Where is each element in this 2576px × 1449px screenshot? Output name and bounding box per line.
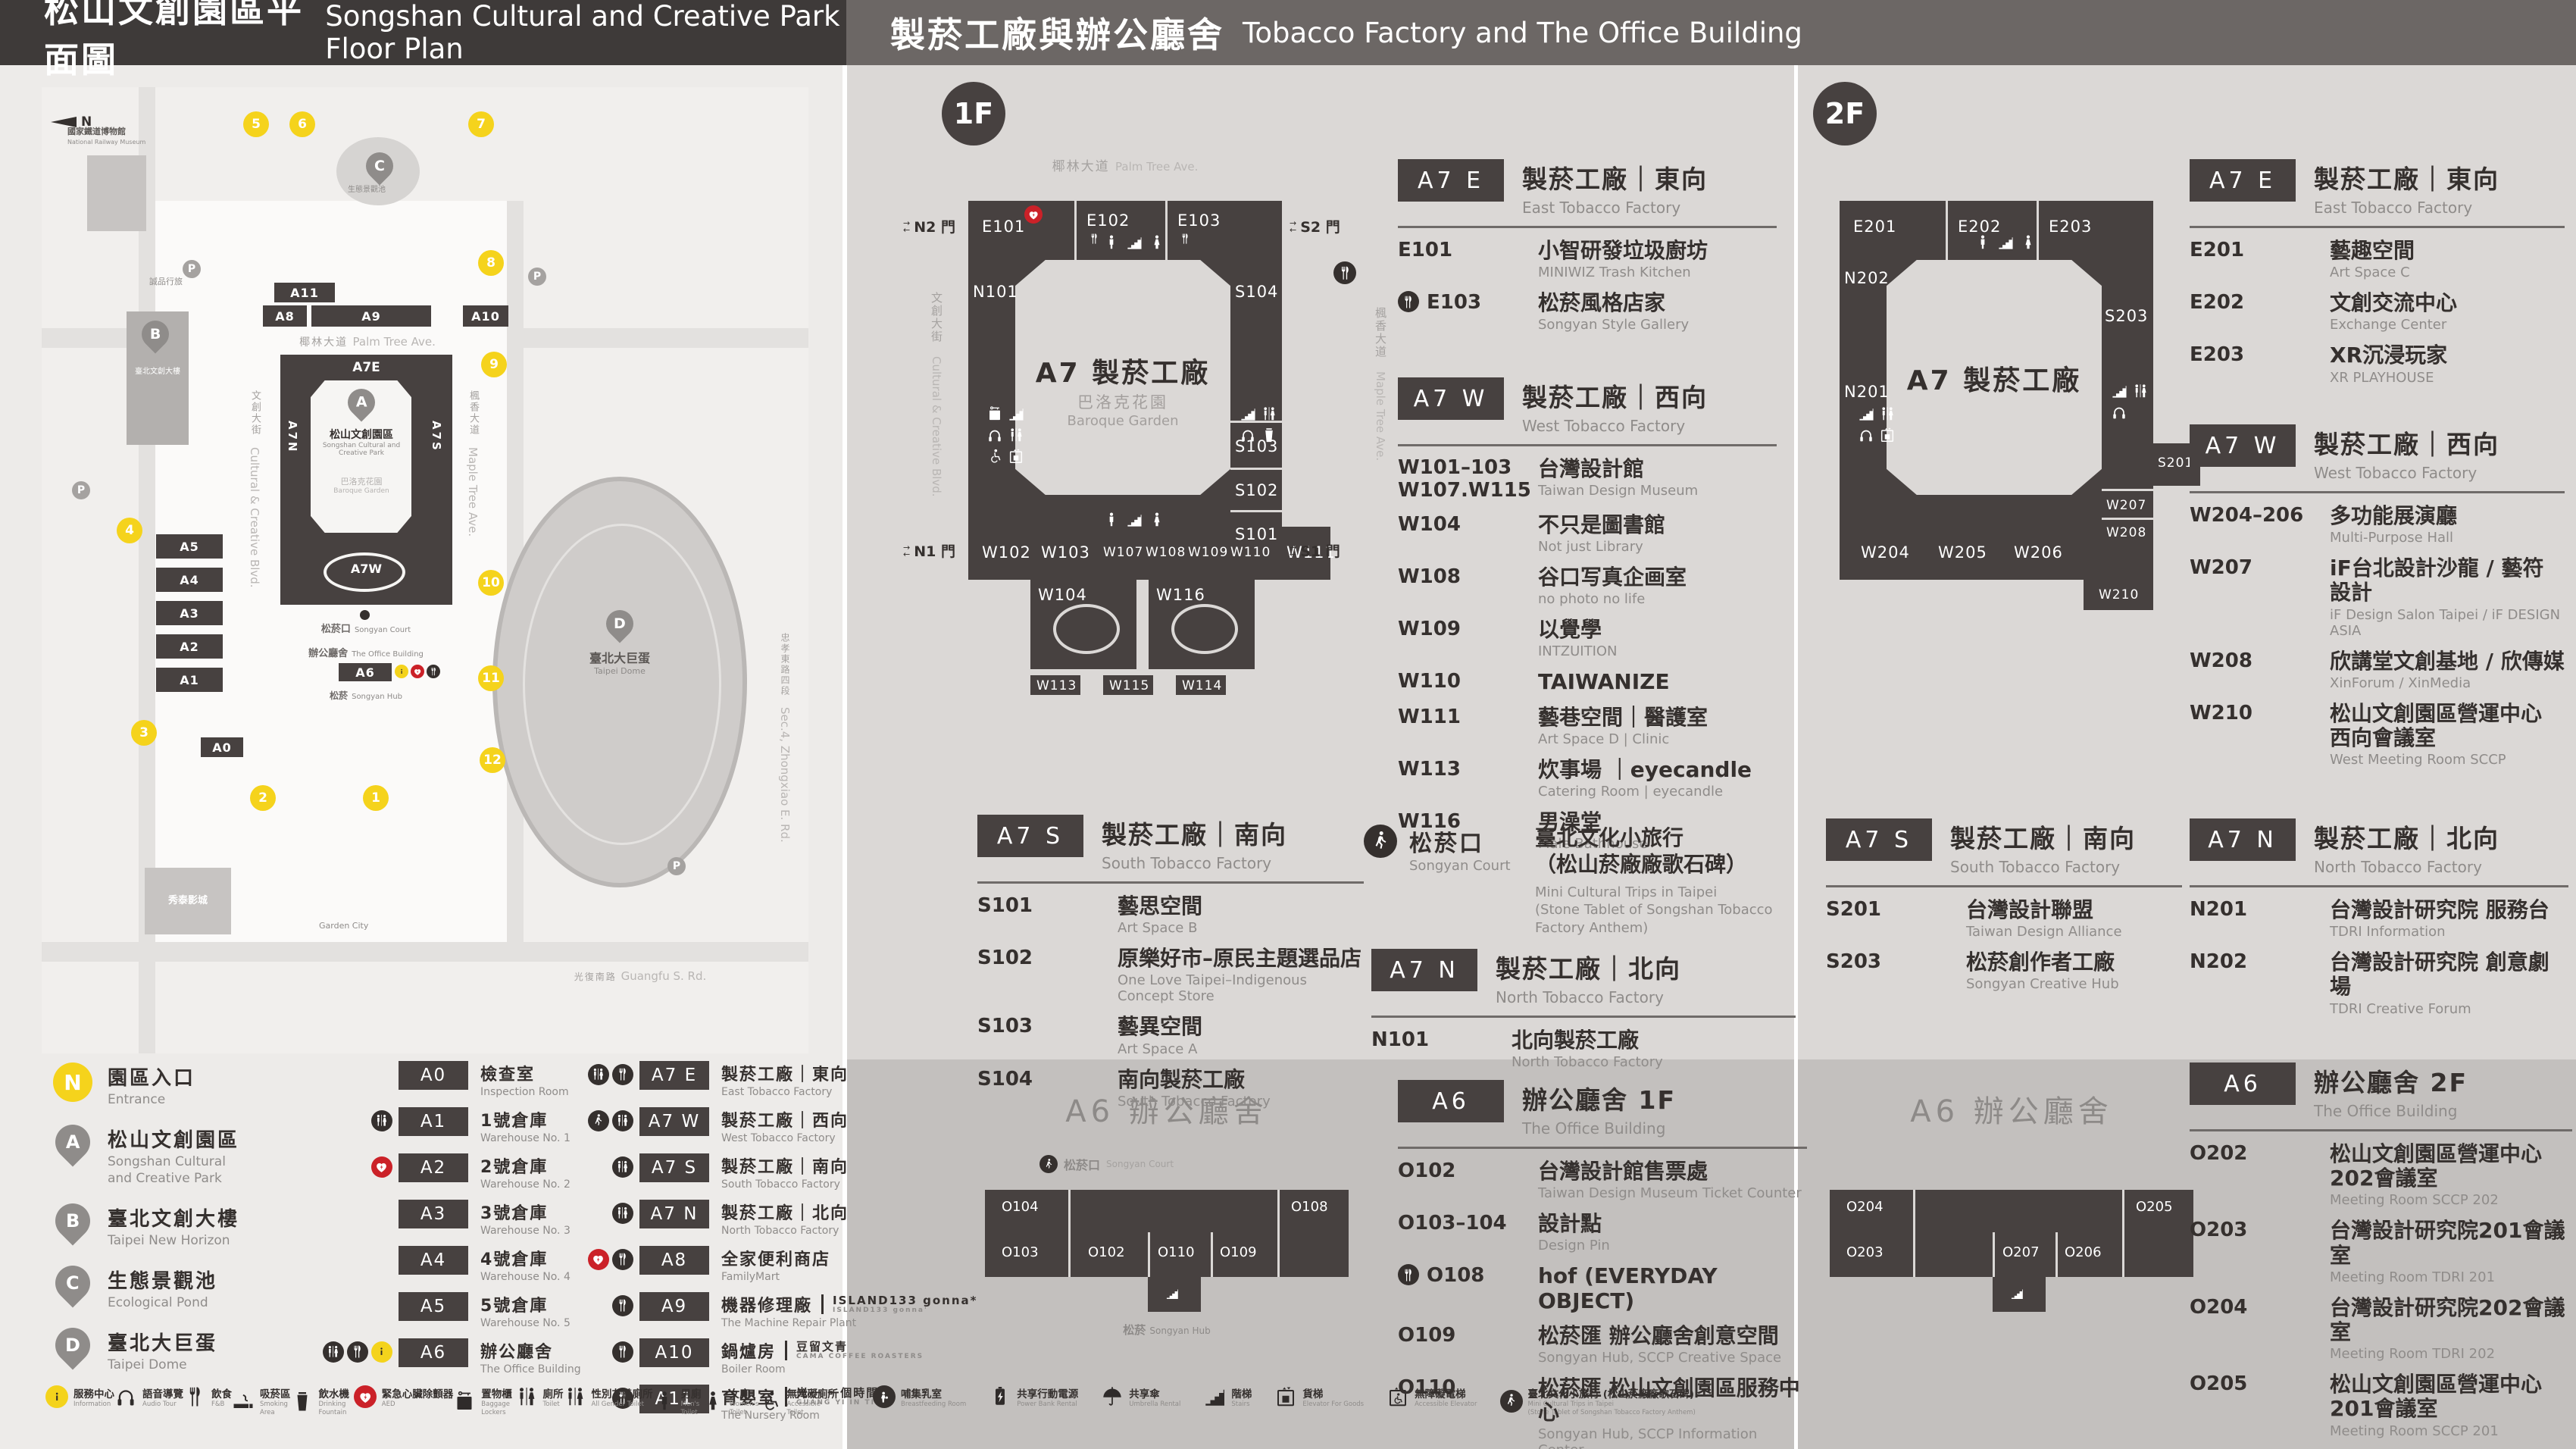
plan-cultural-blvd: 文創大街 Cultural & Creative Blvd. <box>929 292 945 497</box>
legend-building-row: A22號倉庫Warehouse No. 2 <box>317 1153 581 1191</box>
legend-building-badge: A8 <box>639 1246 709 1275</box>
room-o204: O204 <box>1846 1199 1884 1215</box>
room-code-text: O109 <box>1398 1324 1455 1347</box>
directory-item: W101–103W107.W115台灣設計館Taiwan Design Muse… <box>1398 457 1777 502</box>
toilet-icon <box>588 1064 609 1085</box>
section-titles: 製菸工廠｜東向East Tobacco Factory <box>2314 159 2499 217</box>
section-badge: A6 <box>1398 1080 1504 1122</box>
room-name-zh: 松山文創園區營運中心202會議室 <box>2330 1142 2572 1191</box>
room-code: E103 <box>1398 291 1538 314</box>
legend-marker-zh: 臺北大巨蛋 <box>108 1328 217 1356</box>
room-code-text: W111 <box>1398 706 1461 728</box>
room-info: 多功能展演廳Multi-Purpose Hall <box>2330 504 2457 546</box>
section-titles: 製菸工廠｜東向East Tobacco Factory <box>1522 159 1708 217</box>
legend-marker-zh: 松山文創園區 <box>108 1125 239 1153</box>
legend-marker-row: B臺北文創大樓Taipei New Horizon <box>53 1203 239 1249</box>
w104-oval <box>1053 604 1120 654</box>
room-code-text: W108 <box>1398 565 1461 588</box>
songyan-court-label: 松菸口 Songyan Court <box>1409 825 1523 874</box>
facility-zh: 階梯 <box>1231 1385 1252 1400</box>
facility-item: 共享行動電源Power Bank Rental <box>989 1385 1078 1409</box>
room-info: 松菸匯 辦公廳舍創意空間Songyan Hub, SCCP Creative S… <box>1538 1324 1781 1366</box>
facility-zh: 無障礙廁所 <box>787 1385 839 1400</box>
legend-building-badge: A7 E <box>639 1061 709 1090</box>
entrance-2: 2 <box>250 785 276 811</box>
toilet-icon <box>1008 427 1024 443</box>
room-info: iF台北設計沙龍 / 藝符設計iF Design Salon Taipei / … <box>2330 556 2565 638</box>
room-code-text: S102 <box>977 947 1033 969</box>
facility-zh: 吸菸區 <box>260 1385 291 1400</box>
facility-text: 哺集乳室Breastfeeding Room <box>901 1385 966 1409</box>
section-badge: A7 S <box>977 815 1083 857</box>
legend-building-en: South Tobacco Factory <box>721 1178 849 1191</box>
directory-item: O102台灣設計館售票處Taiwan Design Museum Ticket … <box>1398 1160 1807 1201</box>
legend-marker-zh: 園區入口 <box>108 1062 195 1091</box>
directory-item: O204台灣設計研究院202會議室Meeting Room TDRI 202 <box>2190 1296 2572 1362</box>
divider <box>1398 1147 1807 1149</box>
facility-text: 語音導覽Audio Tour <box>142 1385 183 1409</box>
stairs-icon <box>1240 405 1256 422</box>
legend-row-icons <box>317 1292 392 1295</box>
room-code: N101 <box>1371 1028 1512 1051</box>
room-info: 台灣設計聯盟Taiwan Design Alliance <box>1966 898 2122 940</box>
womens-toilet-icon <box>1149 234 1165 251</box>
legend-row-icons <box>558 1153 633 1178</box>
facility-zh: 女廁 <box>730 1385 759 1400</box>
room-code-text: S203 <box>1826 950 1881 973</box>
room-name-zh: iF台北設計沙龍 / 藝符設計 <box>2330 556 2565 605</box>
section-title-zh: 製菸工廠｜南向 <box>1102 815 1287 851</box>
facility-text: 廁所Toilet <box>543 1385 564 1409</box>
parking-icon: P <box>528 268 546 286</box>
railway-museum-label: 國家鐵道博物館National Railway Museum <box>67 127 174 146</box>
room-name-en: Exchange Center <box>2330 317 2457 333</box>
womens-toilet-icon <box>1149 512 1165 528</box>
facility-en: Elevator For Goods <box>1302 1400 1364 1409</box>
room-name-en: XinForum / XinMedia <box>2330 675 2565 691</box>
room-e101: E101 <box>982 218 1025 236</box>
floor-2f-badge: 2F <box>1813 82 1877 146</box>
section-header: A7 N製菸工廠｜北向North Tobacco Factory <box>1371 949 1796 1006</box>
plan-1f-baroque: 巴洛克花園 Baroque Garden <box>1015 390 1230 429</box>
legend-marker-en: Taipei New Horizon <box>108 1233 239 1249</box>
a6-1f-hub-label: 松菸 Songyan Hub <box>970 1322 1364 1338</box>
zh-main: 機器修理廠 <box>721 1292 812 1316</box>
facility-en: Smoking Area <box>260 1400 291 1416</box>
zh-main: 全家便利商店 <box>721 1246 830 1270</box>
zh-main: 2號倉庫 <box>480 1153 548 1178</box>
room-n201: N201 <box>1844 383 1890 401</box>
brand-en: ISLAND133 gonna' <box>833 1307 977 1314</box>
directory-item: W111藝巷空間｜醫護室Art Space D | Clinic <box>1398 706 1777 747</box>
umbrella-icon <box>1101 1385 1124 1408</box>
divider <box>2190 1129 2572 1131</box>
room-code: O103–104 <box>1398 1212 1538 1235</box>
room-name-zh: 松山文創園區營運中心 <box>2330 702 2542 726</box>
room-name-zh: 藝思空間 <box>1118 894 1202 919</box>
room-code-text: W210 <box>2190 702 2252 724</box>
elevator-icon <box>1008 448 1024 465</box>
legend-building-row: A7 S製菸工廠｜南向South Tobacco Factory <box>558 1153 977 1191</box>
facility-item: 女廁Women's Toilet <box>702 1385 759 1416</box>
room-code-text: E101 <box>1398 239 1452 261</box>
room-w210: W210 <box>2099 587 2139 602</box>
facility-text: 階梯Stairs <box>1231 1385 1252 1409</box>
songyan-court-text: 臺北文化小旅行 （松山菸廠廠歌石碑） Mini Cultural Trips i… <box>1535 825 1803 937</box>
room-info: 以覺學INTZUITION <box>1538 618 1618 659</box>
room-info: 設計點Design Pin <box>1538 1212 1610 1253</box>
room-code-text: W110 <box>1398 670 1461 693</box>
gate-s2: S2 門 <box>1290 216 1340 236</box>
entrance-9: 9 <box>481 352 507 377</box>
room-name-en: Taiwan Design Museum <box>1538 483 1698 499</box>
section-badge: A7 W <box>2190 424 2296 467</box>
facility-en: Women's Toilet <box>730 1400 759 1416</box>
facility-item: 共享傘Umbrella Rental <box>1101 1385 1180 1409</box>
divider <box>1371 1016 1796 1018</box>
legend-building-badge: A0 <box>399 1061 468 1090</box>
legend-building-text: 機器修理廠ISLAND133 gonna*ISLAND133 gonna'The… <box>721 1292 977 1329</box>
room-code: O203 <box>2190 1219 2330 1241</box>
room-code: W210 <box>2190 702 2330 724</box>
directory-item: W208欣講堂文創基地 / 欣傳媒XinForum / XinMedia <box>2190 649 2565 691</box>
room-name-zh: 台灣設計館 <box>1538 457 1698 481</box>
room-info: 文創交流中心Exchange Center <box>2330 291 2457 333</box>
room-name-en: One Love Taipei–Indigenous Concept Store <box>1118 972 1364 1004</box>
room-w102: W102 <box>982 543 1031 562</box>
legend-marker-row: A松山文創園區Songshan Culturaland Creative Par… <box>53 1125 239 1187</box>
legend-building-badge: A2 <box>399 1153 468 1182</box>
legend-building-text: 製菸工廠｜北向North Tobacco Factory <box>721 1200 849 1237</box>
stairs-icon <box>1126 512 1143 528</box>
gate-s1: S1 門 <box>1290 540 1340 561</box>
divider <box>2190 885 2568 887</box>
room-name-zh: 炊事場 ｜eyecandle <box>1538 758 1752 782</box>
directory-2f-a7s: A7 S製菸工廠｜南向South Tobacco FactoryS201台灣設計… <box>1826 818 2182 992</box>
brand-label: 豆留文青CAMA COFFEE ROASTERS <box>785 1341 924 1361</box>
facility-text: 共享行動電源Power Bank Rental <box>1017 1385 1078 1409</box>
room-info: 台灣設計館Taiwan Design Museum <box>1538 457 1698 499</box>
room-name-en: iF Design Salon Taipei / iF DESIGN ASIA <box>2330 607 2565 639</box>
room-e102: E102 <box>1086 211 1130 230</box>
facility-text: 性別友善廁所All Gender Toilet <box>592 1385 653 1409</box>
new-horizon-label: 臺北文創大樓 <box>133 365 183 376</box>
map-pin-icon: C <box>48 1258 97 1307</box>
a7w-map-label: A7W <box>280 562 452 576</box>
map-hub-label: 松菸 Songyan Hub <box>305 687 427 702</box>
food-icon <box>1088 233 1100 245</box>
legend-buildings-b: A7 E製菸工廠｜東向East Tobacco FactoryA7 W製菸工廠｜… <box>558 1061 977 1431</box>
building-a6: A6 <box>339 663 392 681</box>
legend-marker-en: Entrance <box>108 1092 195 1108</box>
room-code-text: N201 <box>2190 898 2247 921</box>
legend-marker-text: 松山文創園區Songshan Culturaland Creative Park <box>108 1125 239 1187</box>
room-info: 藝趣空間Art Space C <box>2330 239 2415 280</box>
room-name-en: Art Space C <box>2330 264 2415 280</box>
info-icon <box>371 1341 392 1363</box>
legend-building-row: A55號倉庫Warehouse No. 5 <box>317 1292 581 1329</box>
section-header: A7 W製菸工廠｜西向West Tobacco Factory <box>2190 424 2565 482</box>
directory-item: O203台灣設計研究院201會議室Meeting Room TDRI 201 <box>2190 1219 2572 1285</box>
room-name-zh: 設計點 <box>1538 1212 1610 1236</box>
room-name-en: TDRI Creative Forum <box>2330 1001 2568 1017</box>
zh-main: 製菸工廠｜北向 <box>721 1200 849 1224</box>
entrance-11: 11 <box>478 665 504 691</box>
room-name-en: Art Space B <box>1118 920 1202 936</box>
room-name-en: Not just Library <box>1538 539 1665 555</box>
room-w114: W114 <box>1182 678 1222 693</box>
legend-row-icons <box>317 1338 392 1363</box>
room-info: 原樂好市–原民主題選品店One Love Taipei–Indigenous C… <box>1118 947 1364 1004</box>
legend-building-badge: A1 <box>399 1107 468 1136</box>
room-code: E101 <box>1398 239 1538 261</box>
facility-text: 貨梯Elevator For Goods <box>1302 1385 1364 1409</box>
facility-en: Drinking Fountain <box>319 1400 354 1416</box>
room-name-en: Songyan Hub, SCCP Creative Space <box>1538 1350 1781 1366</box>
directory-1f-a7e: A7 E製菸工廠｜東向East Tobacco FactoryE101小智研發垃… <box>1398 159 1777 333</box>
directory-item: E201藝趣空間Art Space C <box>2190 239 2565 280</box>
directory-item: O110松菸匯 松山文創園區服務中心Songyan Hub, SCCP Info… <box>1398 1376 1807 1449</box>
room-code: W111 <box>1398 706 1538 728</box>
legend-marker-en: Taipei Dome <box>108 1357 217 1373</box>
a6-1f-title: A6 辦公廳舍 <box>970 1087 1364 1131</box>
room-code-text: W109 <box>1398 618 1461 640</box>
stairs-icon <box>2010 1287 2024 1300</box>
room-info: 藝巷空間｜醫護室Art Space D | Clinic <box>1538 706 1708 747</box>
stairs-icon <box>1203 1385 1226 1408</box>
room-name-zh: 以覺學 <box>1538 618 1618 642</box>
legend-building-row: A44號倉庫Warehouse No. 4 <box>317 1246 581 1283</box>
aed-icon <box>354 1385 377 1408</box>
brand-zh: 豆留文青 <box>796 1341 924 1354</box>
room-name-en: West Meeting Room SCCP <box>2330 752 2542 768</box>
room-w110: W110 <box>1230 545 1271 560</box>
room-code: W104 <box>1398 513 1538 536</box>
a6-plan-2f: A6 辦公廳舍 O204 O205 O203 O207 O206 <box>1815 1084 2209 1372</box>
food-icon <box>612 1064 633 1085</box>
legend-building-en: North Tobacco Factory <box>721 1225 849 1237</box>
room-code: S201 <box>1826 898 1966 921</box>
trip-icon <box>588 1110 609 1131</box>
facility-en: All Gender Toilet <box>592 1400 653 1409</box>
room-info: 不只是圖書館Not just Library <box>1538 513 1665 555</box>
divider <box>1398 444 1777 446</box>
entrance-4: 4 <box>117 518 142 543</box>
section-titles: 辦公廳舍 2FThe Office Building <box>2314 1062 2468 1120</box>
room-o205: O205 <box>2136 1199 2173 1215</box>
cinema-label: 秀泰影城 <box>152 892 224 906</box>
room-w108: W108 <box>1146 545 1186 560</box>
facility-item: 飲水機Drinking Fountain <box>291 1385 354 1416</box>
room-info: 小智研發垃圾廚坊MINIWIZ Trash Kitchen <box>1538 239 1708 280</box>
parking-icon: P <box>667 857 686 875</box>
facility-strip-left: 服務中心Information語音導覽Audio Tour飲食F&B吸菸區Smo… <box>45 1385 838 1416</box>
section-header: A6辦公廳舍 1FThe Office Building <box>1398 1080 1807 1138</box>
room-code: N202 <box>2190 950 2330 973</box>
section-title-zh: 製菸工廠｜南向 <box>1950 818 2136 855</box>
room-code-text: E203 <box>2190 343 2244 366</box>
a7e-map-label: A7E <box>280 360 452 375</box>
room-name-zh: 松菸風格店家 <box>1538 291 1689 315</box>
section-title-en: The Office Building <box>1522 1119 1676 1138</box>
audio-tour-icon <box>1858 427 1874 443</box>
taipei-dome-inner <box>523 524 721 845</box>
room-n202: N202 <box>1844 269 1890 287</box>
room-w104: W104 <box>1038 586 1087 604</box>
section-header: A6辦公廳舍 2FThe Office Building <box>2190 1062 2572 1120</box>
divider <box>1398 226 1777 228</box>
room-w116: W116 <box>1156 586 1205 604</box>
food-icon <box>347 1341 368 1363</box>
room-info: 欣講堂文創基地 / 欣傳媒XinForum / XinMedia <box>2330 649 2565 691</box>
legend-building-text: 製菸工廠｜東向East Tobacco Factory <box>721 1061 849 1098</box>
room-o207: O207 <box>2002 1244 2040 1260</box>
women-icon <box>702 1390 724 1413</box>
room-info: 台灣設計館售票處Taiwan Design Museum Ticket Coun… <box>1538 1160 1802 1201</box>
legend-building-row: A10鍋爐房豆留文青CAMA COFFEE ROASTERSBoiler Roo… <box>558 1338 977 1375</box>
section-badge: A7 N <box>1371 949 1477 991</box>
directory-item: S102原樂好市–原民主題選品店One Love Taipei–Indigeno… <box>977 947 1364 1004</box>
room-name-en: Multi-Purpose Hall <box>2330 530 2457 546</box>
room-info: TAIWANIZE <box>1538 670 1670 694</box>
power-icon <box>989 1385 1011 1408</box>
facility-en: Audio Tour <box>142 1400 183 1409</box>
legend-building-row: A8全家便利商店FamilyMart <box>558 1246 977 1283</box>
legend-marker-text: 臺北文創大樓Taipei New Horizon <box>108 1203 239 1249</box>
facility-item: 廁所Toilet <box>515 1385 564 1409</box>
left-title-en: Songshan Cultural and Creative Park Floo… <box>325 0 846 65</box>
room-info: 谷口写真企画室no photo no life <box>1538 565 1687 607</box>
room-code: O204 <box>2190 1296 2330 1319</box>
audio-tour-icon <box>986 427 1003 443</box>
zh-main: 4號倉庫 <box>480 1246 548 1270</box>
legend-building-zh: 製菸工廠｜東向 <box>721 1061 849 1085</box>
room-name-en: Songyan Hub, SCCP Information Center <box>1538 1426 1807 1449</box>
drinking-fountain-icon <box>1261 427 1277 443</box>
food-icon <box>183 1385 206 1408</box>
entrance-1: 1 <box>363 785 389 811</box>
section-badge: A6 <box>2190 1062 2296 1105</box>
facility-zh: 服務中心 <box>73 1385 114 1400</box>
toilet-icon <box>612 1156 633 1178</box>
room-e103: E103 <box>1177 211 1221 230</box>
facility-zh: 性別友善廁所 <box>592 1385 653 1400</box>
directory-2f-a6: A6辦公廳舍 2FThe Office BuildingO202松山文創園區營運… <box>2190 1062 2572 1449</box>
building-a4: A4 <box>156 568 223 592</box>
section-title-en: West Tobacco Factory <box>1522 417 1708 435</box>
legend-building-row: A11號倉庫Warehouse No. 1 <box>317 1107 581 1144</box>
facility-item: 性別友善廁所All Gender Toilet <box>564 1385 653 1409</box>
gate-n2: N2 門 <box>903 216 955 236</box>
section-title-en: East Tobacco Factory <box>2314 199 2499 217</box>
facility-en: AED <box>382 1400 454 1409</box>
room-info: hof (EVERYDAY OBJECT) <box>1538 1264 1807 1313</box>
room-name-en: MINIWIZ Trash Kitchen <box>1538 264 1708 280</box>
legend-marker-row: D臺北大巨蛋Taipei Dome <box>53 1328 239 1373</box>
aed-icon <box>411 665 424 678</box>
room-info: 松菸匯 松山文創園區服務中心Songyan Hub, SCCP Informat… <box>1538 1376 1807 1449</box>
directory-item: W108谷口写真企画室no photo no life <box>1398 565 1777 607</box>
zh-main: 鍋爐房 <box>721 1338 776 1363</box>
legend-row-icons <box>558 1200 633 1224</box>
walking-person-icon <box>1039 1155 1058 1173</box>
room-code-text: N101 <box>1371 1028 1429 1051</box>
room-name-en: Meeting Room SCCP 202 <box>2330 1192 2572 1208</box>
zh-main: 檢查室 <box>480 1061 535 1085</box>
directory-item: W204–206多功能展演廳Multi-Purpose Hall <box>2190 504 2565 546</box>
facility-zh: 廁所 <box>543 1385 564 1400</box>
room-code: W108 <box>1398 565 1538 588</box>
section-title-en: East Tobacco Factory <box>1522 199 1708 217</box>
legend-building-zh: 機器修理廠ISLAND133 gonna*ISLAND133 gonna' <box>721 1292 977 1316</box>
facility-text: 無障礙廁所Accessible Toilet <box>787 1385 839 1416</box>
room-code-text: W207 <box>2190 556 2252 579</box>
entrance-marker-icon: N <box>53 1062 92 1102</box>
room-n101: N101 <box>973 283 1018 301</box>
legend-row-icons <box>558 1338 633 1363</box>
toilet-icon <box>2132 383 2149 399</box>
divider <box>2190 226 2565 228</box>
legend-building-en: Boiler Room <box>721 1363 924 1375</box>
smoke-icon <box>232 1390 255 1413</box>
room-name-zh: 台灣設計研究院202會議室 <box>2330 1296 2572 1344</box>
room-name-zh: 藝異空間 <box>1118 1015 1202 1039</box>
legend-building-zh: 製菸工廠｜南向 <box>721 1153 849 1178</box>
room-code: S101 <box>977 894 1118 917</box>
walking-person-icon <box>1364 825 1397 858</box>
aed-icon <box>588 1249 609 1270</box>
wheel-icon <box>759 1390 782 1413</box>
room-name-zh: 台灣設計聯盟 <box>1966 898 2122 922</box>
a7s-map-label: A7S <box>430 421 443 452</box>
legend-marker-zh: 生態景觀池 <box>108 1266 217 1294</box>
zh-main: 製菸工廠｜東向 <box>721 1061 849 1085</box>
facility-item: 無障礙廁所Accessible Toilet <box>759 1385 839 1416</box>
stairs-icon <box>1165 1287 1179 1300</box>
legend-building-en: FamilyMart <box>721 1271 830 1283</box>
food-icon <box>1179 233 1191 245</box>
room-code: S203 <box>1826 950 1966 973</box>
section-badge: A7 E <box>2190 159 2296 202</box>
legend-building-row: A9機器修理廠ISLAND133 gonna*ISLAND133 gonna'T… <box>558 1292 977 1329</box>
room-name-zh: 多功能展演廳 <box>2330 504 2457 528</box>
pin-letter: A <box>66 1131 80 1153</box>
zh-main: 辦公廳舍 <box>480 1338 553 1363</box>
room-e201: E201 <box>1853 218 1896 236</box>
room-o103: O103 <box>1002 1244 1039 1260</box>
room-name-zh: 台灣設計館售票處 <box>1538 1160 1802 1184</box>
room-o108: O108 <box>1291 1199 1328 1215</box>
room-name-en: Songyan Creative Hub <box>1966 976 2119 992</box>
room-name-en: Art Space A <box>1118 1041 1202 1057</box>
building-a0: A0 <box>201 737 243 757</box>
facility-text: 飲水機Drinking Fountain <box>319 1385 354 1416</box>
room-code-text: O202 <box>2190 1142 2247 1165</box>
room-code: W207 <box>2190 556 2330 579</box>
directory-item: S101藝思空間Art Space B <box>977 894 1364 936</box>
legend-building-zh: 製菸工廠｜北向 <box>721 1200 849 1224</box>
aed-icon <box>371 1156 392 1178</box>
facility-item: 置物櫃Baggage Lockers <box>453 1385 514 1416</box>
brand-label: ISLAND133 gonna*ISLAND133 gonna' <box>821 1294 977 1315</box>
room-code: O102 <box>1398 1160 1538 1182</box>
room-name-en: no photo no life <box>1538 591 1687 607</box>
toilet-icon <box>323 1341 344 1363</box>
room-code-line: W101–103 <box>1398 457 1531 480</box>
room-info: 松山文創園區營運中心西向會議室West Meeting Room SCCP <box>2330 702 2542 768</box>
map-pin-icon: A <box>48 1118 97 1167</box>
section-header: A7 S製菸工廠｜南向South Tobacco Factory <box>977 815 1364 872</box>
